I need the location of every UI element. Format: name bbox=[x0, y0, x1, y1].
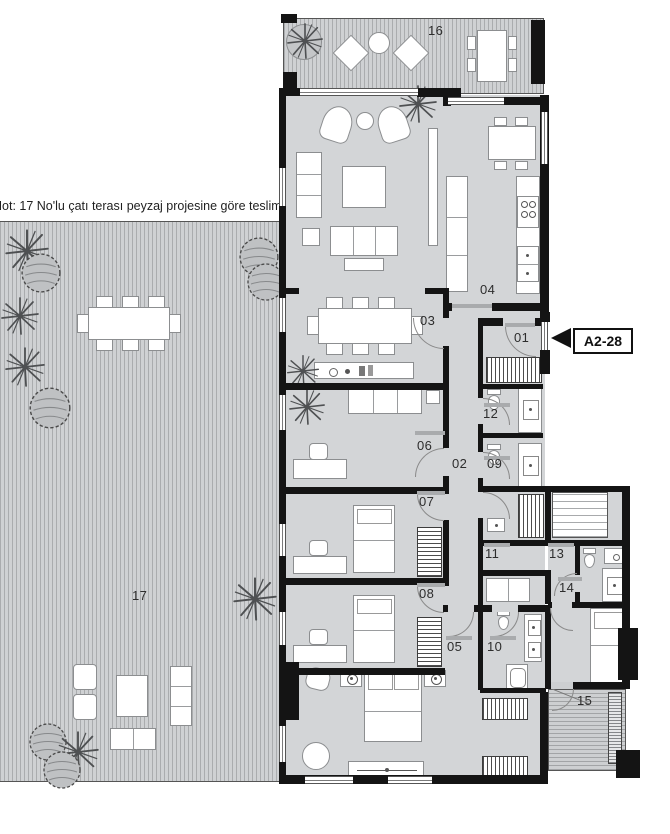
side-table bbox=[302, 228, 320, 246]
bathtub bbox=[506, 664, 528, 690]
laundry-sink bbox=[487, 518, 505, 532]
wall bbox=[285, 668, 445, 675]
dining-table bbox=[318, 308, 412, 344]
dining-chair bbox=[122, 296, 139, 308]
dining-chair bbox=[467, 36, 476, 50]
stove-icon bbox=[517, 196, 539, 228]
dining-chair bbox=[96, 339, 113, 351]
wall bbox=[540, 692, 548, 778]
wall bbox=[417, 88, 461, 97]
sofa bbox=[330, 226, 398, 256]
wall bbox=[478, 424, 483, 452]
room-label-10: 10 bbox=[487, 640, 502, 653]
room-label-02: 02 bbox=[452, 457, 467, 470]
unit-tag: A2-28 bbox=[573, 328, 633, 354]
dining-chair bbox=[169, 314, 181, 333]
room-label-01: 01 bbox=[514, 331, 529, 344]
floor-plan: Not: 17 No'lu çatı terası peyzaj projesi… bbox=[0, 0, 670, 834]
dining-chair bbox=[515, 117, 528, 126]
sofa bbox=[170, 666, 192, 726]
window bbox=[541, 322, 548, 350]
wall bbox=[285, 383, 445, 390]
vanity-sink bbox=[518, 387, 542, 433]
window bbox=[279, 395, 286, 430]
wall bbox=[575, 545, 580, 575]
dining-chair bbox=[378, 297, 395, 309]
room-label-07: 07 bbox=[419, 495, 434, 508]
dining-chair bbox=[326, 297, 343, 309]
dining-chair bbox=[508, 36, 517, 50]
door-opening bbox=[551, 682, 573, 689]
wall bbox=[531, 20, 545, 84]
room-label-15: 15 bbox=[577, 694, 592, 707]
kitchen-table bbox=[488, 126, 536, 160]
window bbox=[279, 612, 286, 645]
desk bbox=[293, 556, 347, 574]
wardrobe bbox=[482, 698, 528, 720]
room-label-03: 03 bbox=[420, 314, 435, 327]
dining-chair bbox=[352, 343, 369, 355]
wall bbox=[545, 488, 551, 546]
wall bbox=[443, 520, 449, 586]
window bbox=[541, 112, 548, 164]
bed bbox=[353, 595, 395, 663]
shaft bbox=[552, 492, 608, 538]
window bbox=[279, 168, 286, 206]
palm-tree-icon bbox=[286, 22, 324, 60]
dining-chair bbox=[307, 316, 319, 335]
round-tree-icon bbox=[20, 252, 62, 294]
dining-chair bbox=[494, 117, 507, 126]
round-tree-icon bbox=[28, 386, 72, 430]
bed bbox=[364, 670, 422, 742]
dining-chair bbox=[494, 161, 507, 170]
wardrobe bbox=[417, 527, 442, 577]
desk-chair bbox=[309, 629, 328, 645]
room-label-04: 04 bbox=[480, 283, 495, 296]
desk-chair bbox=[309, 443, 328, 460]
door-lintel bbox=[505, 323, 535, 327]
desk bbox=[293, 645, 347, 663]
window bbox=[305, 776, 353, 784]
kitchen-counter bbox=[446, 176, 468, 292]
desk bbox=[293, 459, 347, 479]
side-table bbox=[426, 390, 440, 404]
kitchen-sink bbox=[517, 246, 539, 282]
wall bbox=[545, 570, 551, 604]
palm-tree-icon bbox=[232, 576, 278, 622]
wall bbox=[540, 350, 550, 374]
room-label-09: 09 bbox=[487, 457, 502, 470]
entry-closet bbox=[486, 357, 542, 383]
sofa bbox=[348, 388, 422, 414]
wall bbox=[283, 72, 297, 89]
room-label-11: 11 bbox=[485, 547, 499, 560]
coffee-table bbox=[342, 166, 386, 208]
palm-tree-icon bbox=[288, 388, 326, 426]
door-lintel bbox=[415, 431, 445, 435]
dining-chair bbox=[148, 296, 165, 308]
ottoman bbox=[344, 258, 384, 271]
round-tree-icon bbox=[42, 750, 82, 790]
desk-chair bbox=[309, 540, 328, 556]
armchair bbox=[73, 664, 97, 690]
round-table bbox=[356, 112, 374, 130]
wall bbox=[425, 288, 443, 294]
palm-tree-icon bbox=[0, 296, 40, 336]
dining-chair bbox=[508, 58, 517, 72]
dining-chair bbox=[326, 343, 343, 355]
window bbox=[279, 524, 286, 556]
dining-chair bbox=[122, 339, 139, 351]
wall bbox=[483, 384, 543, 389]
wall bbox=[618, 628, 638, 680]
wall bbox=[281, 14, 297, 23]
window bbox=[279, 298, 286, 332]
door-opening bbox=[492, 605, 518, 612]
outdoor-table bbox=[477, 30, 507, 82]
coffee-table bbox=[116, 675, 148, 717]
bench bbox=[486, 578, 530, 602]
wall bbox=[478, 612, 483, 690]
sofa bbox=[296, 152, 322, 218]
armchair bbox=[73, 694, 97, 720]
room-label-14: 14 bbox=[559, 581, 574, 594]
window bbox=[448, 97, 504, 105]
room-label-12: 12 bbox=[483, 407, 498, 420]
room-label-06: 06 bbox=[417, 439, 432, 452]
pouf bbox=[302, 742, 330, 770]
wall bbox=[478, 518, 483, 610]
wall bbox=[483, 570, 545, 576]
dining-chair bbox=[515, 161, 528, 170]
dining-chair bbox=[467, 58, 476, 72]
window bbox=[300, 88, 418, 96]
dining-chair bbox=[352, 297, 369, 309]
wall bbox=[503, 97, 545, 105]
dining-chair bbox=[77, 314, 89, 333]
terrace-edge bbox=[0, 221, 286, 222]
room-label-13: 13 bbox=[549, 547, 564, 560]
window bbox=[388, 776, 432, 784]
room-label-17: 17 bbox=[132, 589, 147, 602]
room-label-16: 16 bbox=[428, 24, 443, 37]
wall bbox=[483, 433, 543, 438]
wardrobe bbox=[417, 617, 442, 667]
vanity-sink bbox=[518, 443, 542, 489]
wall bbox=[540, 312, 550, 322]
sideboard bbox=[314, 362, 414, 379]
wall bbox=[483, 486, 630, 492]
palm-tree-icon bbox=[4, 346, 46, 388]
wall bbox=[616, 750, 640, 778]
wall bbox=[285, 288, 299, 294]
wall bbox=[443, 288, 449, 318]
vanity-sink bbox=[524, 614, 542, 662]
round-table bbox=[368, 32, 390, 54]
dining-chair bbox=[148, 339, 165, 351]
balcony-edge bbox=[548, 770, 626, 771]
bed bbox=[353, 505, 395, 573]
door-opening bbox=[448, 605, 474, 612]
door-lintel bbox=[452, 304, 492, 308]
room-label-05: 05 bbox=[447, 640, 462, 653]
dining-chair bbox=[378, 343, 395, 355]
washing-machine bbox=[518, 494, 544, 538]
wall bbox=[281, 662, 299, 720]
outdoor-dining-table bbox=[88, 307, 170, 340]
wall bbox=[545, 608, 551, 688]
unit-pointer-icon bbox=[551, 328, 571, 348]
window bbox=[279, 726, 286, 762]
wall bbox=[480, 688, 546, 693]
tv-console bbox=[428, 128, 438, 246]
dining-chair bbox=[96, 296, 113, 308]
washing-machine bbox=[604, 548, 624, 564]
sofa bbox=[110, 728, 156, 750]
room-label-08: 08 bbox=[419, 587, 434, 600]
